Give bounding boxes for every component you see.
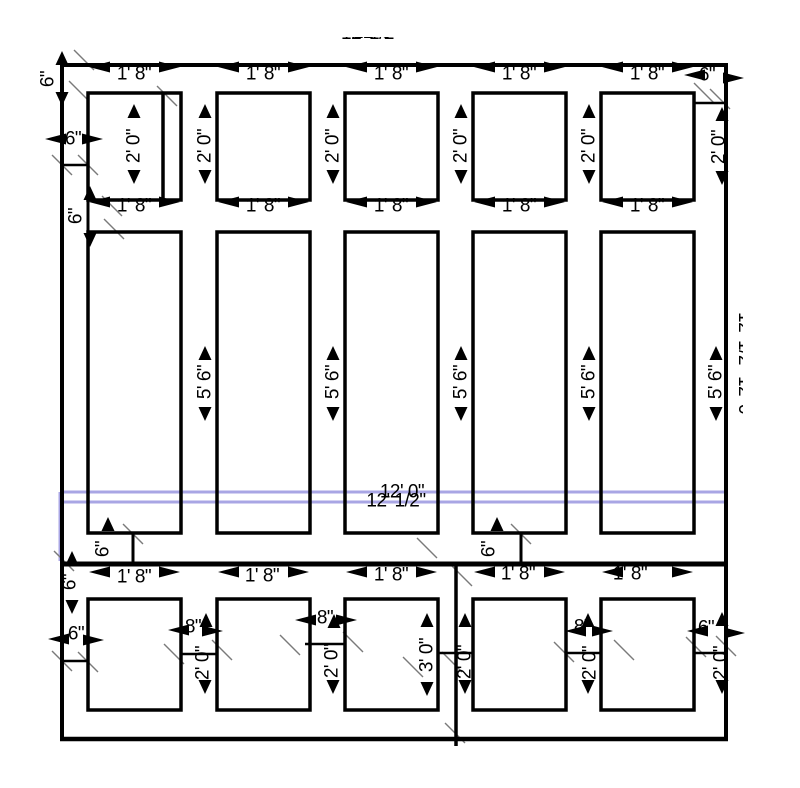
dimension-label: 5' 6" <box>579 365 600 399</box>
dimension-arrow-r <box>416 567 437 578</box>
dimension-arrow-l <box>218 567 239 578</box>
dimension-arrow-u <box>455 104 468 118</box>
dimension-arrow-u <box>583 104 596 118</box>
dimension-label: 8" <box>185 617 201 638</box>
dimension-label: 1' 8" <box>630 64 664 85</box>
dimension-arrow-l <box>474 197 495 208</box>
dimension-arrow-u <box>583 346 596 360</box>
dimension-label: 12' 1/2" <box>366 491 425 512</box>
dimension-label: 2' 0" <box>124 129 145 163</box>
dimension-label: 1' 8" <box>502 64 536 85</box>
dimension-arrow-l <box>346 567 367 578</box>
dimension-arrow-u <box>84 186 97 200</box>
dimension-arrow-d <box>327 407 340 421</box>
panel-box <box>217 93 310 200</box>
dimension-arrow-d <box>199 407 212 421</box>
dimension-arrow-d <box>583 170 596 184</box>
dimension-label: 1' 8" <box>245 566 279 587</box>
dimension-arrow-l <box>89 567 110 578</box>
dimension-arrow-d <box>327 680 340 694</box>
panel-box <box>601 599 694 710</box>
dimension-arrow-d <box>582 680 595 694</box>
dimension-arrow-u <box>710 346 723 360</box>
dimension-label: 5' 6" <box>323 365 344 399</box>
dimension-arrow-l <box>602 197 623 208</box>
dimension-arrow-d <box>710 407 723 421</box>
dimension-arrow-u <box>199 104 212 118</box>
dimension-arrow-r <box>544 197 565 208</box>
dimension-label: 1' 8" <box>117 196 151 217</box>
dimension-tick <box>104 219 124 239</box>
dimension-tick <box>69 81 89 101</box>
dimension-arrow-u <box>102 517 115 531</box>
dimension-label: 6" <box>66 208 87 224</box>
dimension-label: 2' 0" <box>323 129 344 163</box>
dimension-arrow-l <box>45 134 66 145</box>
dimension-label: 6" <box>60 574 81 590</box>
dimension-label: 1' 8" <box>501 564 535 585</box>
dimension-label: 1' 8" <box>630 196 664 217</box>
dimension-arrow-d <box>128 170 141 184</box>
dimension-label: 1' 8" <box>117 567 151 588</box>
dimension-label: 1' 8" <box>246 64 280 85</box>
dimension-arrow-d <box>455 170 468 184</box>
dimension-arrow-u <box>200 613 213 627</box>
dimension-tick <box>280 635 300 655</box>
dimension-tick <box>212 640 232 660</box>
dimension-label: 5' 6" <box>451 365 472 399</box>
dimension-arrow-r <box>83 635 104 646</box>
dimension-arrow-r <box>672 567 693 578</box>
dimension-arrow-r <box>288 197 309 208</box>
dimension-arrow-d <box>84 233 97 247</box>
dimension-arrow-u <box>327 104 340 118</box>
panel-box <box>88 232 181 533</box>
dimension-arrow-r <box>288 567 309 578</box>
dimension-arrow-r <box>159 197 180 208</box>
dimension-label: 5' 6" <box>195 365 216 399</box>
dimension-label: 6" <box>68 624 84 645</box>
dimension-tick <box>417 538 437 558</box>
dimension-arrow-u <box>421 613 434 627</box>
dimension-arrow-u <box>66 551 79 565</box>
dimension-arrow-u <box>455 346 468 360</box>
dim-label: 12' 0" <box>734 376 743 420</box>
dimension-arrow-r <box>202 626 223 637</box>
clipped-dimension-text-right: 12' 1/2" 12' 0" <box>734 312 743 477</box>
dimension-arrow-r <box>723 73 744 84</box>
dimension-label: 2' 0" <box>579 129 600 163</box>
dimension-label: 6" <box>93 541 114 557</box>
dimension-label: 2' 0" <box>455 645 476 679</box>
dimension-label: 1' 8" <box>246 196 280 217</box>
dimension-arrow-u <box>56 51 69 65</box>
panel-box <box>88 599 181 710</box>
dimension-arrow-l <box>295 615 316 626</box>
dimension-arrow-r <box>724 628 745 639</box>
dimension-arrow-u <box>491 517 504 531</box>
dimension-label: 8" <box>574 617 590 638</box>
dimension-arrow-d <box>455 407 468 421</box>
dimension-arrow-u <box>459 613 472 627</box>
dimension-label: 2' 0" <box>580 646 601 680</box>
dimension-arrow-r <box>672 197 693 208</box>
dimension-arrow-r <box>82 134 103 145</box>
dimension-label: 2' 0" <box>711 646 732 680</box>
dimension-arrow-d <box>459 680 472 694</box>
panel-box <box>473 93 566 200</box>
dimension-arrow-l <box>218 197 239 208</box>
panel-box <box>473 232 566 533</box>
dimension-label: 1' 8" <box>374 565 408 586</box>
dimension-label: 5' 6" <box>706 365 727 399</box>
dimension-arrow-u <box>327 346 340 360</box>
dimension-label: 1' 8" <box>374 196 408 217</box>
dimension-arrow-d <box>421 682 434 696</box>
dimension-label: 1' 8" <box>502 196 536 217</box>
dimension-tick <box>694 83 714 103</box>
dimension-label: 1' 8" <box>117 64 151 85</box>
dimension-label: 2' 0" <box>195 129 216 163</box>
dimension-label: 1' 8" <box>374 64 408 85</box>
dimension-label: 1' 8" <box>613 564 647 585</box>
dimension-arrow-u <box>128 104 141 118</box>
dimension-arrow-d <box>583 407 596 421</box>
panel-box <box>345 93 438 200</box>
dimension-arrow-l <box>474 567 495 578</box>
dimension-label: 6" <box>65 129 81 150</box>
panel-box <box>217 599 310 710</box>
panel-box <box>217 232 310 533</box>
dimension-arrow-d <box>66 600 79 614</box>
dimension-label: 2' 0" <box>709 130 730 164</box>
dimension-label: 3' 0" <box>417 638 438 672</box>
dimension-tick <box>614 640 634 660</box>
dimension-label: 2' 0" <box>451 129 472 163</box>
dimension-arrow-d <box>56 92 69 106</box>
dimension-arrow-l <box>48 634 69 645</box>
dimension-arrow-d <box>199 170 212 184</box>
panel-box <box>601 93 694 200</box>
dimension-arrow-d <box>199 680 212 694</box>
dimension-label: 2' 0" <box>322 644 343 678</box>
dim-label: 12' 1/2" <box>341 37 400 44</box>
dim-label: 12' 1/2" <box>734 312 743 371</box>
dimension-label: 6" <box>38 71 59 87</box>
dimension-label: 2' 0" <box>193 646 214 680</box>
panel-box <box>473 599 566 710</box>
dimension-arrow-r <box>159 567 180 578</box>
dimension-tick <box>157 86 177 106</box>
dimension-label: 8" <box>317 608 333 629</box>
clipped-dimension-text-top: 12' 0" 12' 1/2" <box>341 37 463 45</box>
dimension-label: 6" <box>698 618 714 639</box>
dimension-arrow-r <box>544 567 565 578</box>
cad-elevation-drawing: 1' 8"1' 8"1' 8"1' 8"1' 8"6"6"1' 8"1' 8"1… <box>0 0 800 783</box>
dimension-arrow-d <box>327 170 340 184</box>
drawing-canvas[interactable]: 1' 8"1' 8"1' 8"1' 8"1' 8"6"6"1' 8"1' 8"1… <box>0 0 800 783</box>
dimension-arrow-l <box>346 197 367 208</box>
dimension-label: 6" <box>699 65 715 86</box>
dimension-label: 6" <box>479 541 500 557</box>
dimension-arrow-r <box>416 197 437 208</box>
panel-box <box>601 232 694 533</box>
dimension-arrow-u <box>199 346 212 360</box>
